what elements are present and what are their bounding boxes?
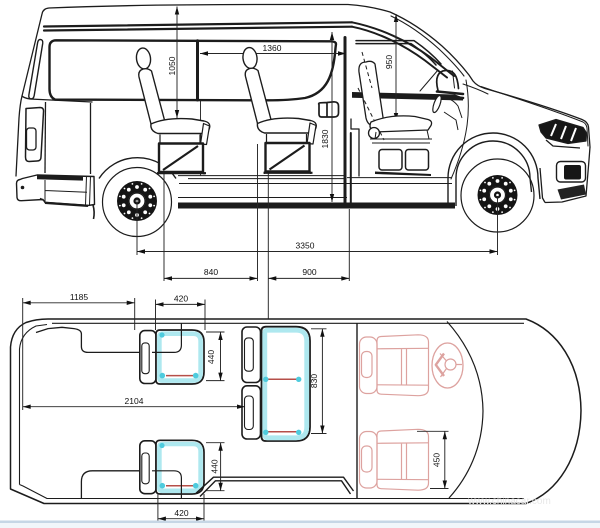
svg-text:840: 840 [204, 267, 218, 277]
svg-text:830: 830 [309, 374, 319, 388]
svg-text:950: 950 [384, 55, 394, 69]
svg-text:2104: 2104 [125, 396, 144, 406]
svg-text:450: 450 [432, 453, 442, 467]
svg-text:1050: 1050 [167, 56, 177, 75]
svg-text:440: 440 [210, 459, 220, 473]
svg-text:900: 900 [302, 267, 316, 277]
svg-text:1830: 1830 [320, 129, 330, 148]
svg-text:420: 420 [174, 294, 188, 304]
svg-text:440: 440 [206, 350, 216, 364]
svg-text:1185: 1185 [70, 292, 89, 302]
svg-text:1360: 1360 [263, 43, 282, 53]
svg-text:3350: 3350 [296, 241, 315, 251]
svg-text:www.chinacar.com: www.chinacar.com [467, 496, 551, 507]
svg-text:420: 420 [174, 508, 188, 518]
